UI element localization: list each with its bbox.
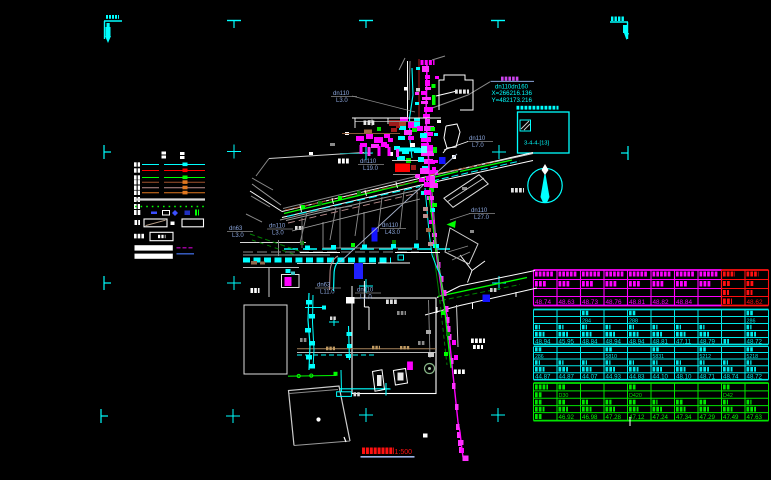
svg-text:48.84: 48.84 <box>676 299 692 306</box>
svg-text:48.81: 48.81 <box>653 338 669 345</box>
svg-text:48.74: 48.74 <box>723 374 739 381</box>
svg-text:48.74: 48.74 <box>535 299 551 306</box>
svg-text:48.72: 48.72 <box>747 338 763 345</box>
svg-text:D42: D42 <box>723 393 733 399</box>
svg-text:286: 286 <box>535 354 544 360</box>
svg-text:44.93: 44.93 <box>606 374 622 381</box>
svg-text:48.79: 48.79 <box>700 338 716 345</box>
svg-text:45.95: 45.95 <box>559 338 575 345</box>
svg-text:46.98: 46.98 <box>582 414 598 421</box>
svg-text:44.87: 44.87 <box>535 374 551 381</box>
svg-text:D420: D420 <box>629 393 642 399</box>
svg-text:48.82: 48.82 <box>653 299 669 306</box>
svg-text:5831: 5831 <box>653 354 665 360</box>
svg-text:44.87: 44.87 <box>559 374 575 381</box>
svg-text:48.76: 48.76 <box>606 299 622 306</box>
svg-text:D30: D30 <box>559 393 569 399</box>
svg-text:48.94: 48.94 <box>535 338 551 345</box>
svg-text:47.49: 47.49 <box>723 414 739 421</box>
svg-text:3-4-4-[13]: 3-4-4-[13] <box>524 141 550 147</box>
svg-text:L3.0: L3.0 <box>272 231 284 237</box>
svg-text:5218: 5218 <box>747 354 759 360</box>
svg-text:47.34: 47.34 <box>676 414 692 421</box>
svg-text:Y=482173.216: Y=482173.216 <box>492 97 533 104</box>
svg-text:47.11: 47.11 <box>676 338 692 345</box>
svg-text:286: 286 <box>747 319 756 325</box>
svg-text:46.92: 46.92 <box>559 414 575 421</box>
svg-text:48.62: 48.62 <box>747 299 763 306</box>
svg-text:48.73: 48.73 <box>582 299 598 306</box>
svg-text:44.10: 44.10 <box>653 374 669 381</box>
svg-text:L3.0: L3.0 <box>336 98 348 104</box>
svg-text:47.29: 47.29 <box>700 414 716 421</box>
svg-text:1:500: 1:500 <box>395 449 413 456</box>
svg-text:47.63: 47.63 <box>747 414 763 421</box>
svg-text:48.71: 48.71 <box>700 374 716 381</box>
svg-text:44.83: 44.83 <box>629 374 645 381</box>
svg-text:L43.0: L43.0 <box>385 230 401 236</box>
svg-text:288: 288 <box>629 319 638 325</box>
svg-text:L19.0: L19.0 <box>363 166 379 172</box>
svg-text:48.84: 48.84 <box>582 338 598 345</box>
svg-text:L3.0: L3.0 <box>232 233 244 239</box>
svg-text:L27.0: L27.0 <box>474 215 490 221</box>
svg-text:48.81: 48.81 <box>629 299 645 306</box>
svg-text:48.63: 48.63 <box>559 299 575 306</box>
svg-text:5212: 5212 <box>700 354 712 360</box>
svg-text:47.24: 47.24 <box>653 414 669 421</box>
svg-text:48.94: 48.94 <box>606 338 622 345</box>
svg-text:L1.0: L1.0 <box>360 295 372 301</box>
svg-text:47.28: 47.28 <box>606 414 622 421</box>
svg-text:L7.0: L7.0 <box>472 143 484 149</box>
svg-text:5810: 5810 <box>606 354 618 360</box>
svg-text:48.72: 48.72 <box>747 374 763 381</box>
svg-text:48.10: 48.10 <box>676 374 692 381</box>
svg-text:284: 284 <box>582 319 591 325</box>
svg-text:44.07: 44.07 <box>582 374 598 381</box>
svg-text:L11.0: L11.0 <box>320 290 335 296</box>
svg-text:48.94: 48.94 <box>629 338 645 345</box>
svg-text:47.12: 47.12 <box>629 414 645 421</box>
